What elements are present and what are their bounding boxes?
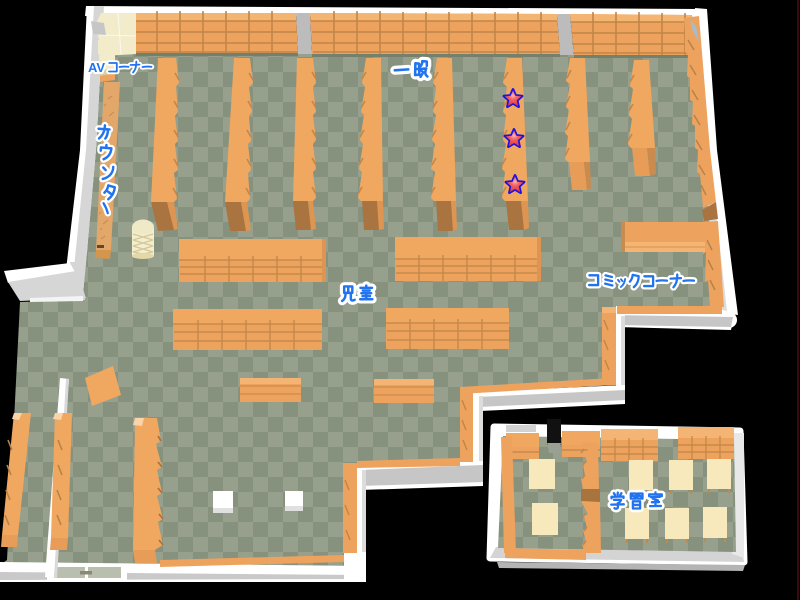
svg-text:AV: AV [88,60,105,75]
